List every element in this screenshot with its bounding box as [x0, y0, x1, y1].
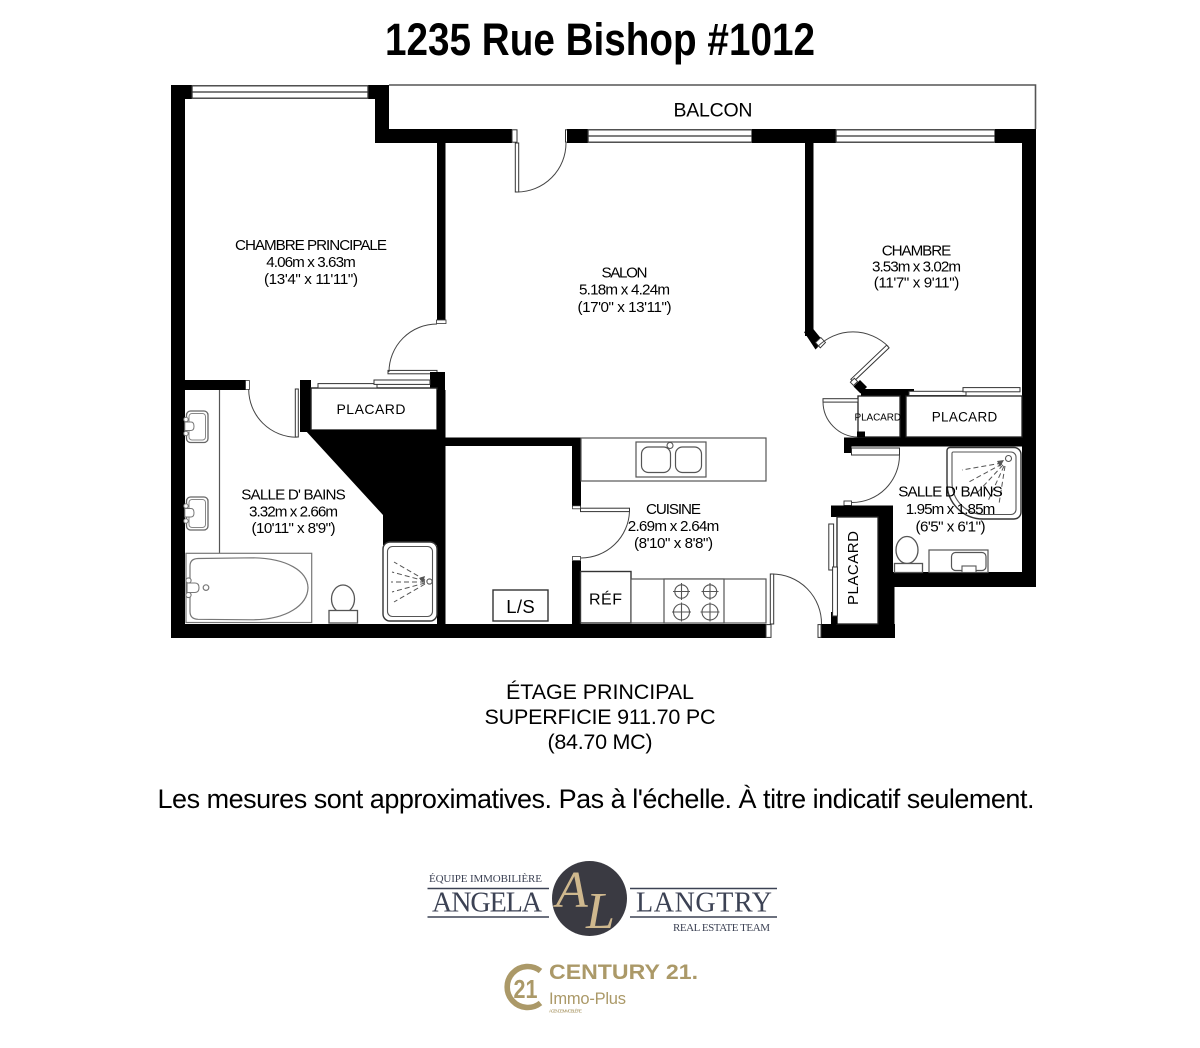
svg-text:(8'10" x 8'8"): (8'10" x 8'8") — [634, 535, 713, 552]
svg-text:ANGELA: ANGELA — [432, 888, 543, 919]
svg-text:3.32m x 2.66m: 3.32m x 2.66m — [249, 504, 338, 521]
svg-text:(84.70 MC): (84.70 MC) — [548, 730, 653, 754]
svg-text:L: L — [585, 883, 615, 940]
svg-text:ÉTAGE PRINCIPAL: ÉTAGE PRINCIPAL — [506, 679, 694, 704]
svg-text:AGENCE IMMOBILIÈRE: AGENCE IMMOBILIÈRE — [549, 1008, 582, 1014]
svg-text:BALCON: BALCON — [674, 100, 753, 122]
svg-text:PLACARD: PLACARD — [855, 413, 902, 424]
svg-text:PLACARD: PLACARD — [337, 401, 406, 417]
svg-text:(6'5" x 6'1"): (6'5" x 6'1") — [916, 519, 986, 536]
svg-text:Les mesures sont approximative: Les mesures sont approximatives. Pas à l… — [158, 784, 1035, 814]
svg-text:(17'0" x 13'11"): (17'0" x 13'11") — [578, 299, 672, 316]
svg-text:LANGTRY: LANGTRY — [636, 888, 772, 919]
svg-text:REAL ESTATE TEAM: REAL ESTATE TEAM — [673, 922, 770, 934]
svg-text:3.53m x 3.02m: 3.53m x 3.02m — [872, 259, 961, 276]
svg-text:A: A — [553, 862, 588, 919]
svg-text:CHAMBRE PRINCIPALE: CHAMBRE PRINCIPALE — [235, 237, 387, 254]
svg-text:(13'4" x 11'11"): (13'4" x 11'11") — [264, 271, 358, 288]
svg-text:1235 Rue Bishop #1012: 1235 Rue Bishop #1012 — [385, 14, 815, 65]
svg-text:SALLE D' BAINS: SALLE D' BAINS — [898, 484, 1003, 501]
svg-text:(10'11" x 8'9"): (10'11" x 8'9") — [252, 520, 336, 537]
svg-text:PLACARD: PLACARD — [932, 410, 998, 425]
svg-text:Immo-Plus: Immo-Plus — [549, 990, 626, 1008]
svg-text:CUISINE: CUISINE — [646, 501, 701, 518]
svg-text:1.95m x 1.85m: 1.95m x 1.85m — [906, 501, 996, 518]
svg-text:ÉQUIPE IMMOBILIÈRE: ÉQUIPE IMMOBILIÈRE — [429, 873, 542, 885]
svg-text:SALLE D' BAINS: SALLE D' BAINS — [241, 487, 346, 504]
svg-text:CENTURY 21.: CENTURY 21. — [549, 961, 698, 984]
svg-text:SALON: SALON — [602, 265, 648, 282]
svg-text:SUPERFICIE 911.70 PC: SUPERFICIE 911.70 PC — [485, 705, 716, 729]
svg-text:2.69m x 2.64m: 2.69m x 2.64m — [628, 518, 720, 535]
svg-text:(11'7" x 9'11"): (11'7" x 9'11") — [874, 275, 960, 292]
svg-text:CHAMBRE: CHAMBRE — [882, 243, 952, 260]
svg-text:5.18m x 4.24m: 5.18m x 4.24m — [579, 282, 670, 299]
svg-text:PLACARD: PLACARD — [845, 531, 862, 605]
svg-text:4.06m x 3.63m: 4.06m x 3.63m — [266, 254, 356, 271]
svg-text:RÉF: RÉF — [589, 590, 622, 609]
svg-text:L/S: L/S — [506, 596, 535, 617]
svg-text:21: 21 — [514, 974, 538, 1004]
